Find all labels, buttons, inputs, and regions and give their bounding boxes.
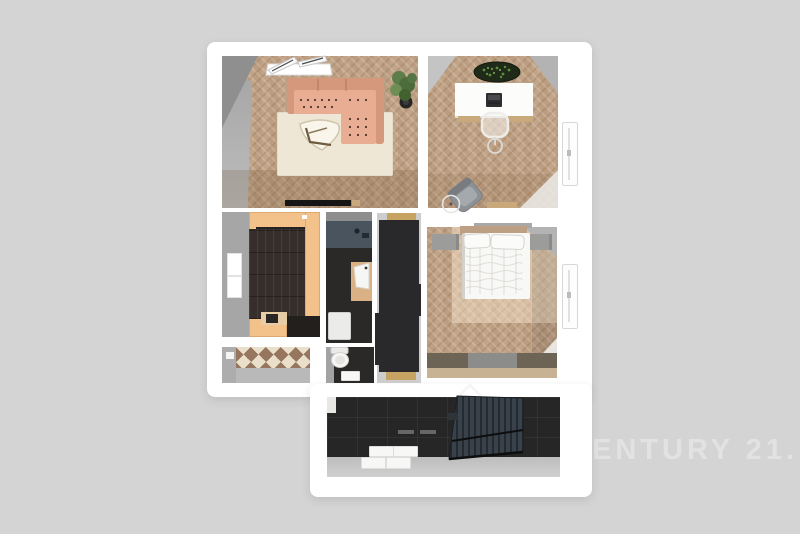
- tv-lowboard-side: [352, 200, 360, 206]
- office-window: [562, 122, 578, 186]
- kitchen-window-upper: [227, 253, 242, 276]
- wardrobe-top-cap: [387, 213, 416, 220]
- living-room-rug: [277, 112, 393, 176]
- doormat-tile: [393, 446, 418, 457]
- century21-watermark: ENTURY 21.: [592, 434, 798, 467]
- floor-mark: [398, 430, 414, 434]
- checkered-floor: [236, 347, 310, 368]
- desk-drawer-left: [458, 116, 480, 122]
- kitchen-sink: [261, 312, 287, 325]
- wardrobe-bump-right: [417, 284, 421, 316]
- nightstand-right: [527, 234, 552, 250]
- sideboard: [487, 202, 517, 208]
- kitchen-dark-floor: [249, 229, 305, 319]
- vanity-cabinet: [351, 262, 372, 301]
- wardrobe-bottom-cap: [386, 372, 416, 380]
- bedroom-rug: [468, 353, 517, 368]
- floor-plan-screenshot: ENTURY 21.: [0, 0, 800, 534]
- bathroom-wall-face: [326, 212, 372, 221]
- bedroom-window: [562, 264, 578, 329]
- entrance-hall-room: [327, 397, 560, 457]
- wardrobe: [379, 220, 419, 372]
- doormat-tile: [369, 446, 394, 457]
- kitchen-window-lower: [227, 276, 242, 298]
- doormat-tile: [386, 457, 411, 469]
- desk: [455, 83, 533, 118]
- floor-mark: [420, 430, 436, 434]
- nightstand-left: [432, 234, 459, 250]
- light-switch: [226, 352, 234, 359]
- entrance-wall-jog: [327, 397, 336, 413]
- washing-machine: [328, 312, 351, 340]
- bedroom-tan-band: [427, 368, 557, 378]
- tv-lowboard: [285, 200, 351, 206]
- desk-drawer-right: [508, 116, 533, 122]
- kitchen-counter-handle: [302, 215, 307, 219]
- wc-mat: [341, 371, 360, 381]
- double-bed: [462, 233, 530, 299]
- doormat-tile: [361, 457, 386, 469]
- wc-wall-face: [326, 347, 334, 383]
- kitchen-appliance-lower: [287, 316, 320, 337]
- wardrobe-bump-left: [375, 313, 381, 365]
- bedroom-floor-shade: [532, 240, 557, 353]
- bathroom-counter: [326, 221, 372, 248]
